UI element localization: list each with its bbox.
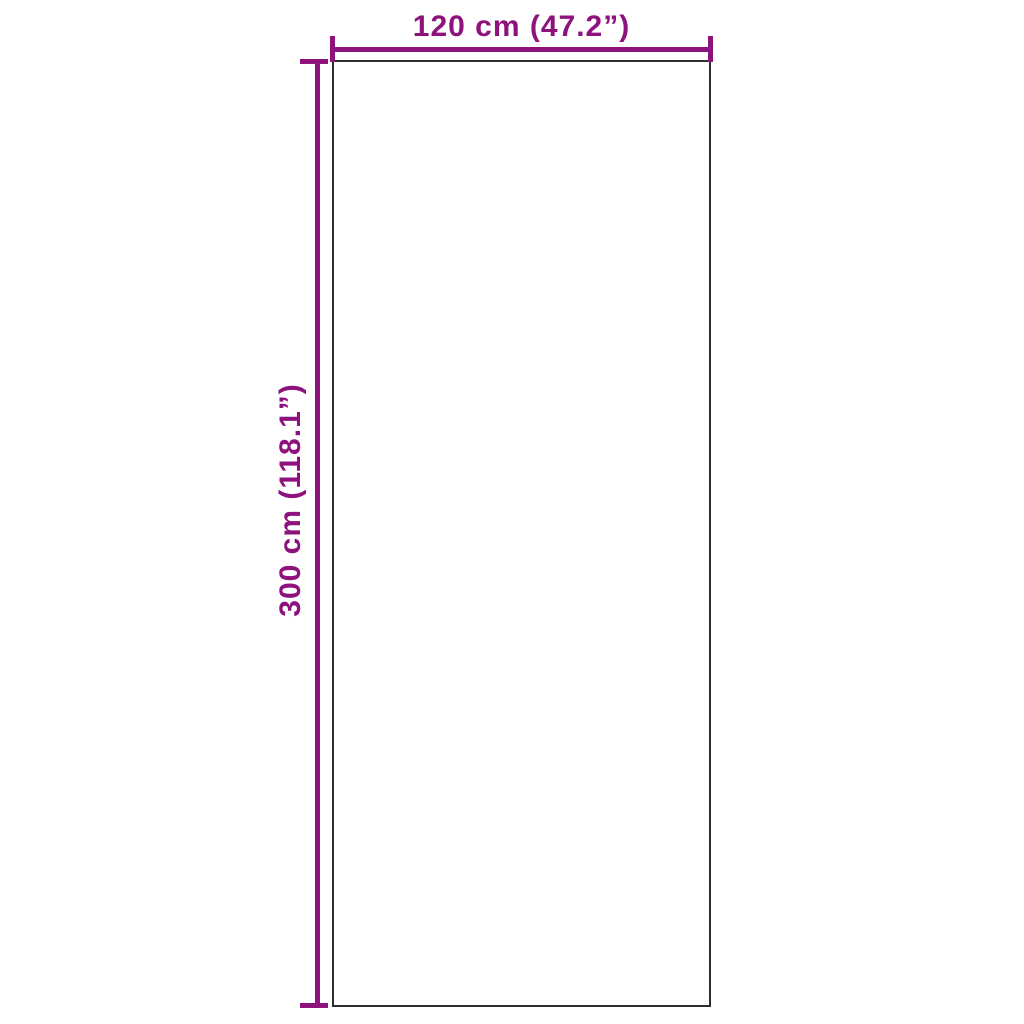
- product-outline: [332, 60, 711, 1007]
- height-dimension-cap-top: [300, 59, 328, 64]
- dimension-diagram: 120 cm (47.2”) 300 cm (118.1”): [0, 0, 1024, 1024]
- width-dimension-label: 120 cm (47.2”): [332, 12, 711, 42]
- height-dimension-label: 300 cm (118.1”): [276, 383, 306, 616]
- height-dimension-cap-bottom: [300, 1003, 328, 1008]
- width-dimension-line: [332, 47, 711, 52]
- height-dimension-line: [315, 61, 320, 1006]
